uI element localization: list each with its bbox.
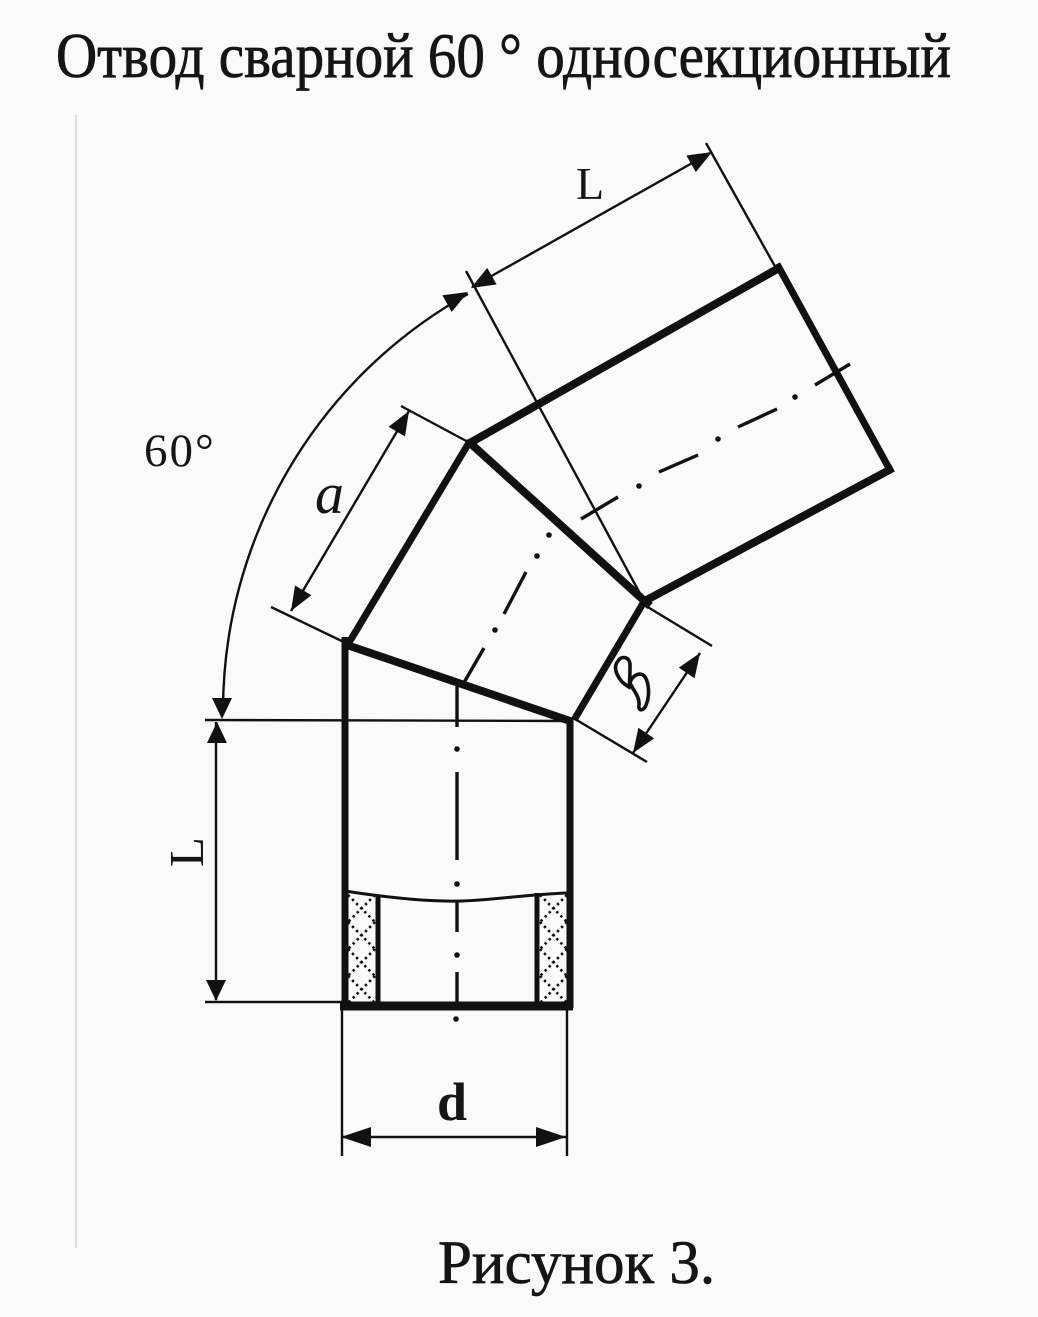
- svg-text:Отвод сварной 60 ° односекцион: Отвод сварной 60 ° односекционный: [56, 20, 951, 91]
- svg-text:Рисунок 3.: Рисунок 3.: [438, 1230, 715, 1297]
- svg-text:d: d: [437, 1072, 467, 1132]
- svg-text:60°: 60°: [144, 425, 216, 477]
- svg-text:L: L: [576, 158, 604, 209]
- svg-text:L: L: [159, 837, 214, 867]
- svg-text:a: a: [315, 461, 344, 526]
